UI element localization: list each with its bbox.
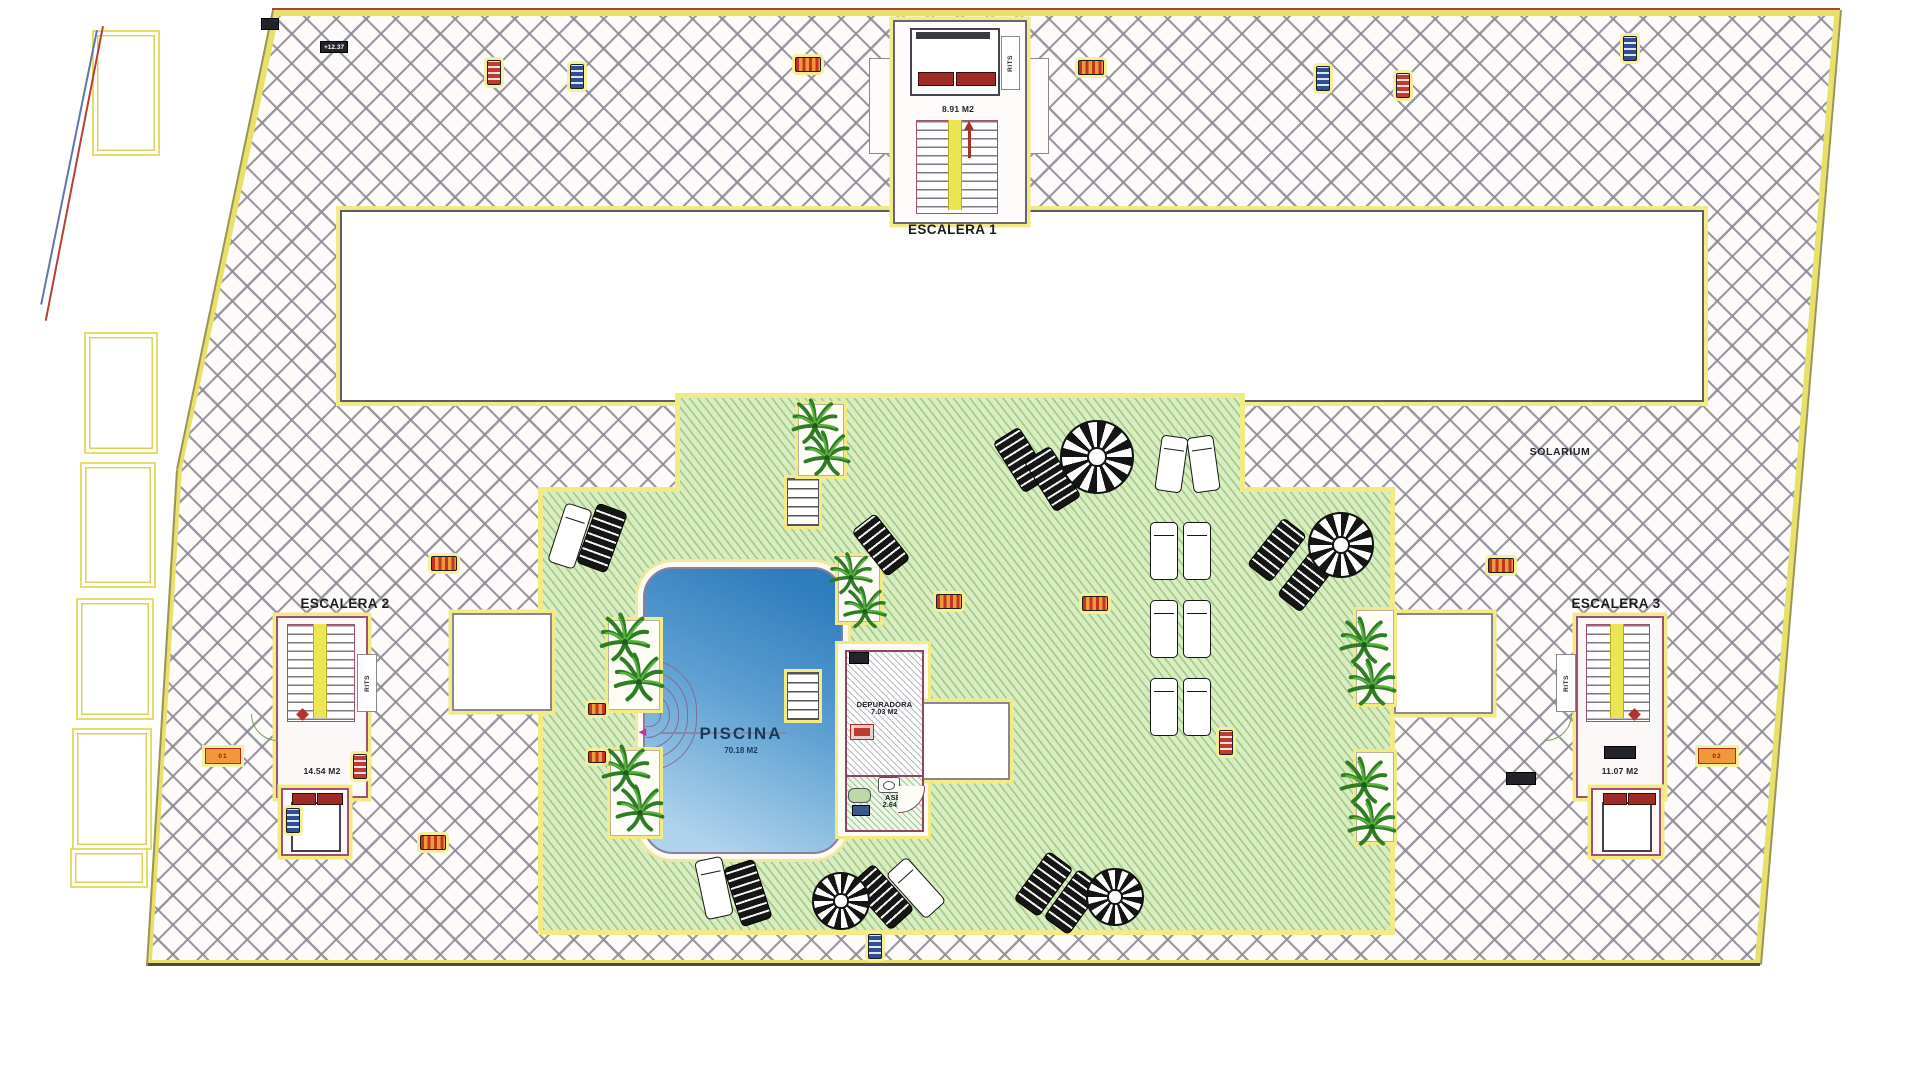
service-marker-blue xyxy=(1623,36,1637,61)
toilet-fixture xyxy=(848,788,871,803)
stair-rail xyxy=(313,624,327,718)
escalera1-label: ESCALERA 1 xyxy=(880,222,1025,237)
palm-tree-icon xyxy=(800,428,854,482)
sun-lounger xyxy=(1183,522,1211,580)
deck-stair-ladder xyxy=(787,672,819,720)
service-marker-blue xyxy=(868,934,882,959)
elevator-shaft xyxy=(1602,802,1652,852)
utility-tag: 02 xyxy=(1698,748,1736,764)
depuradora-room: DEPURADORA 7.03 M2 xyxy=(845,650,924,777)
elevator-doors xyxy=(918,72,954,86)
elevator-doors xyxy=(292,793,316,805)
elevator-doors xyxy=(1603,793,1627,805)
deck-landing xyxy=(922,702,1010,780)
pool-title: PISCINA xyxy=(653,724,829,744)
utility-tag: 01 xyxy=(205,748,241,764)
pool-entry-arrow: ◄ xyxy=(636,724,649,739)
sink-fixture xyxy=(878,777,900,793)
parasol-icon xyxy=(1308,512,1374,578)
escalera3-area: 11.07 M2 xyxy=(1578,766,1662,776)
sun-lounger xyxy=(1183,678,1211,736)
service-marker-blue xyxy=(570,64,584,89)
rits-shaft: RITS xyxy=(1001,36,1020,90)
deck-stair-ladder xyxy=(787,478,819,526)
red-property-line xyxy=(45,26,104,321)
service-marker-orange xyxy=(795,57,821,72)
escalera1-area: 8.91 M2 xyxy=(908,104,1008,114)
rits-shaft: RITS xyxy=(357,654,377,712)
service-marker-orange xyxy=(431,556,457,571)
site-edge-bottom xyxy=(146,963,1760,966)
escalera2-label: ESCALERA 2 xyxy=(270,596,420,611)
service-marker-orange xyxy=(1078,60,1104,75)
parasol-icon xyxy=(1086,868,1144,926)
parasol-icon xyxy=(812,872,870,930)
solarium-label: SOLARIUM xyxy=(1500,446,1620,458)
service-marker-red xyxy=(353,754,367,779)
adjacent-building-bay xyxy=(72,728,152,850)
adjacent-building-bay xyxy=(70,848,148,888)
palm-tree-icon xyxy=(1344,796,1400,852)
adjacent-building-bay xyxy=(84,332,158,454)
label-chip xyxy=(261,18,279,30)
depuradora-title: DEPURADORA xyxy=(850,700,920,709)
stair-rail xyxy=(1610,624,1624,718)
parasol-icon xyxy=(1060,420,1134,494)
site-edge-top xyxy=(272,8,1840,10)
service-marker-red xyxy=(1219,730,1233,755)
service-marker-orange xyxy=(936,594,962,609)
elevation-chip: +12.37 xyxy=(320,41,348,53)
palm-tree-icon xyxy=(612,782,668,838)
escalera3-elevator-annex xyxy=(1591,788,1661,856)
valve-symbol xyxy=(850,724,874,740)
service-marker-orange-small xyxy=(588,703,606,715)
stair-rail xyxy=(948,120,962,210)
palm-tree-icon xyxy=(840,584,890,634)
blue-property-line xyxy=(40,30,97,305)
depuradora-area: 7.03 M2 xyxy=(850,709,920,716)
escalera3-label: ESCALERA 3 xyxy=(1541,596,1691,611)
sun-lounger xyxy=(1183,600,1211,658)
service-marker-blue xyxy=(286,808,300,833)
sun-lounger xyxy=(1150,522,1178,580)
label-chip xyxy=(1604,746,1636,759)
pool-label-block: PISCINA 70.18 M2 xyxy=(653,724,829,755)
pool-area: 70.18 M2 xyxy=(653,746,829,755)
service-marker-orange-small xyxy=(588,751,606,763)
adjacent-building-bay xyxy=(76,598,154,720)
label-chip xyxy=(1506,772,1536,785)
palm-tree-icon xyxy=(1344,656,1400,712)
elevator-doors xyxy=(956,72,996,86)
stair-direction-arrow xyxy=(968,128,971,158)
service-marker-red xyxy=(1396,73,1410,98)
service-marker-orange xyxy=(1082,596,1108,611)
sun-lounger xyxy=(1150,678,1178,736)
elevator-doors xyxy=(317,793,343,805)
stair-direction-arrow-head xyxy=(964,121,974,130)
adjacent-building-bay xyxy=(92,30,160,156)
sun-lounger xyxy=(1150,600,1178,658)
escalera3-tower: 11.07 M2 xyxy=(1576,616,1664,798)
escalera1-tower: 8.91 M2 RITS xyxy=(893,20,1027,224)
service-marker-orange xyxy=(1488,558,1514,573)
light-well xyxy=(452,613,552,711)
adjacent-building-bay xyxy=(80,462,156,588)
palm-tree-icon xyxy=(610,650,668,708)
aseo-chip xyxy=(852,805,870,816)
service-marker-red xyxy=(487,60,501,85)
service-marker-orange xyxy=(420,835,446,850)
elevator-doors xyxy=(1628,793,1656,805)
rits-shaft: RITS xyxy=(1556,654,1576,712)
service-marker-blue xyxy=(1316,66,1330,91)
light-well xyxy=(1394,613,1493,714)
telecom-chip xyxy=(849,652,869,664)
roof-opening xyxy=(340,210,1704,402)
floorplan-canvas: ◄ PISCINA 70.18 M2 DEPURADORA 7.03 M2 AS… xyxy=(0,0,1920,1080)
